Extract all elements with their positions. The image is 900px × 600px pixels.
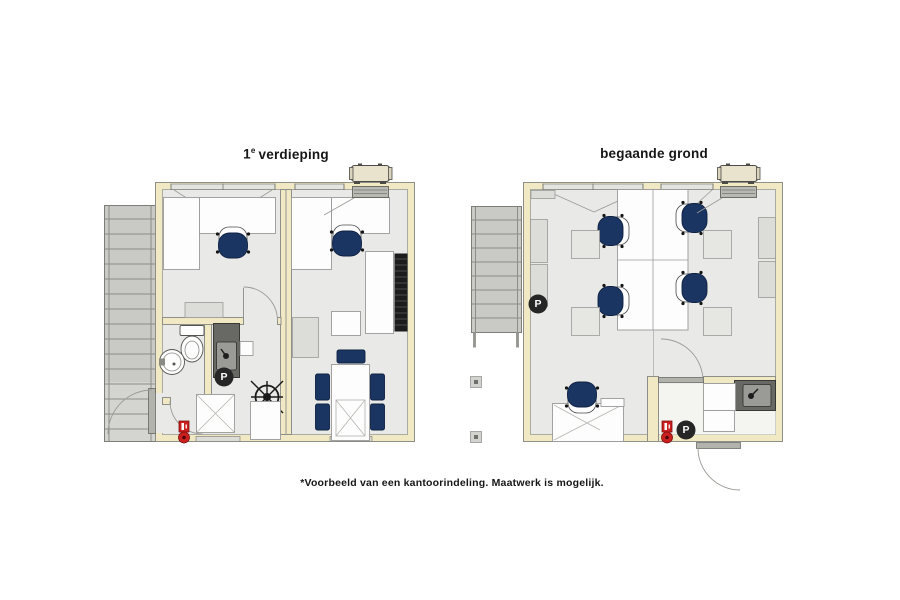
sideboard [293,318,319,358]
meeting-chair [316,374,330,400]
basin-tap [159,359,165,366]
floor-plans-canvas: P [0,0,900,600]
storage-cabinet [251,402,281,440]
pedestal-cabinet [704,231,732,259]
foundation-marker [471,432,482,443]
counter-unit [704,411,735,432]
pedestal-cabinet [572,231,600,259]
staircase-ground-floor [472,207,522,348]
ground-floor-plan: P [471,164,783,491]
fire-extinguisher-icon [662,421,673,443]
office-chair [676,201,707,235]
interior-door-leaf [659,378,704,383]
office-chair [598,214,629,248]
staircase-first-floor [105,206,156,442]
desk [164,198,200,270]
kitchen-sink-icon [743,385,771,407]
printer-marker: P [677,421,696,440]
louver-panel [395,254,408,332]
stair-leg [473,333,476,348]
meeting-chair [316,404,330,430]
printer-marker: P [529,295,548,314]
first-floor-plan: P [105,164,415,444]
stair-door-leaf [149,389,156,434]
entrance-door-arc [698,448,740,490]
storage-cabinet [366,252,394,334]
printer-marker-label: P [682,424,689,436]
stair-door-opening [155,393,163,433]
office-chair [676,271,707,305]
storage-cabinet [531,220,548,263]
office-chair [330,225,364,256]
kitchen-sink-icon [217,342,237,370]
counter-side-unit [240,342,253,356]
storage-cabinet [759,262,776,298]
foundation-marker [471,377,482,388]
meeting-chair [337,350,365,363]
printer-marker-label: P [220,371,227,383]
entrance-door-leaf [697,443,741,449]
printer-marker: P [215,368,234,387]
sideboard [185,303,223,318]
washbasin-icon [159,350,185,375]
stair-leg [516,333,519,348]
shelf [531,191,555,199]
storage-cabinet [759,218,776,259]
pedestal-cabinet [704,308,732,336]
printer-marker-label: P [534,298,541,310]
meeting-chair [371,404,385,430]
meeting-table [332,365,370,441]
pedestal-cabinet [572,308,600,336]
office-chair [565,382,599,413]
side-table [332,312,361,336]
meeting-chair [371,374,385,400]
module-divider-wall [281,190,292,435]
desk [292,198,332,270]
counter-unit [704,384,736,411]
keyboard [601,399,624,407]
office-chair [598,284,629,318]
floor-plan-page: 1everdieping begaande grond *Voorbeeld v… [0,0,900,600]
fire-extinguisher-icon [179,421,190,443]
window-sill [196,437,240,442]
office-chair [216,227,250,258]
